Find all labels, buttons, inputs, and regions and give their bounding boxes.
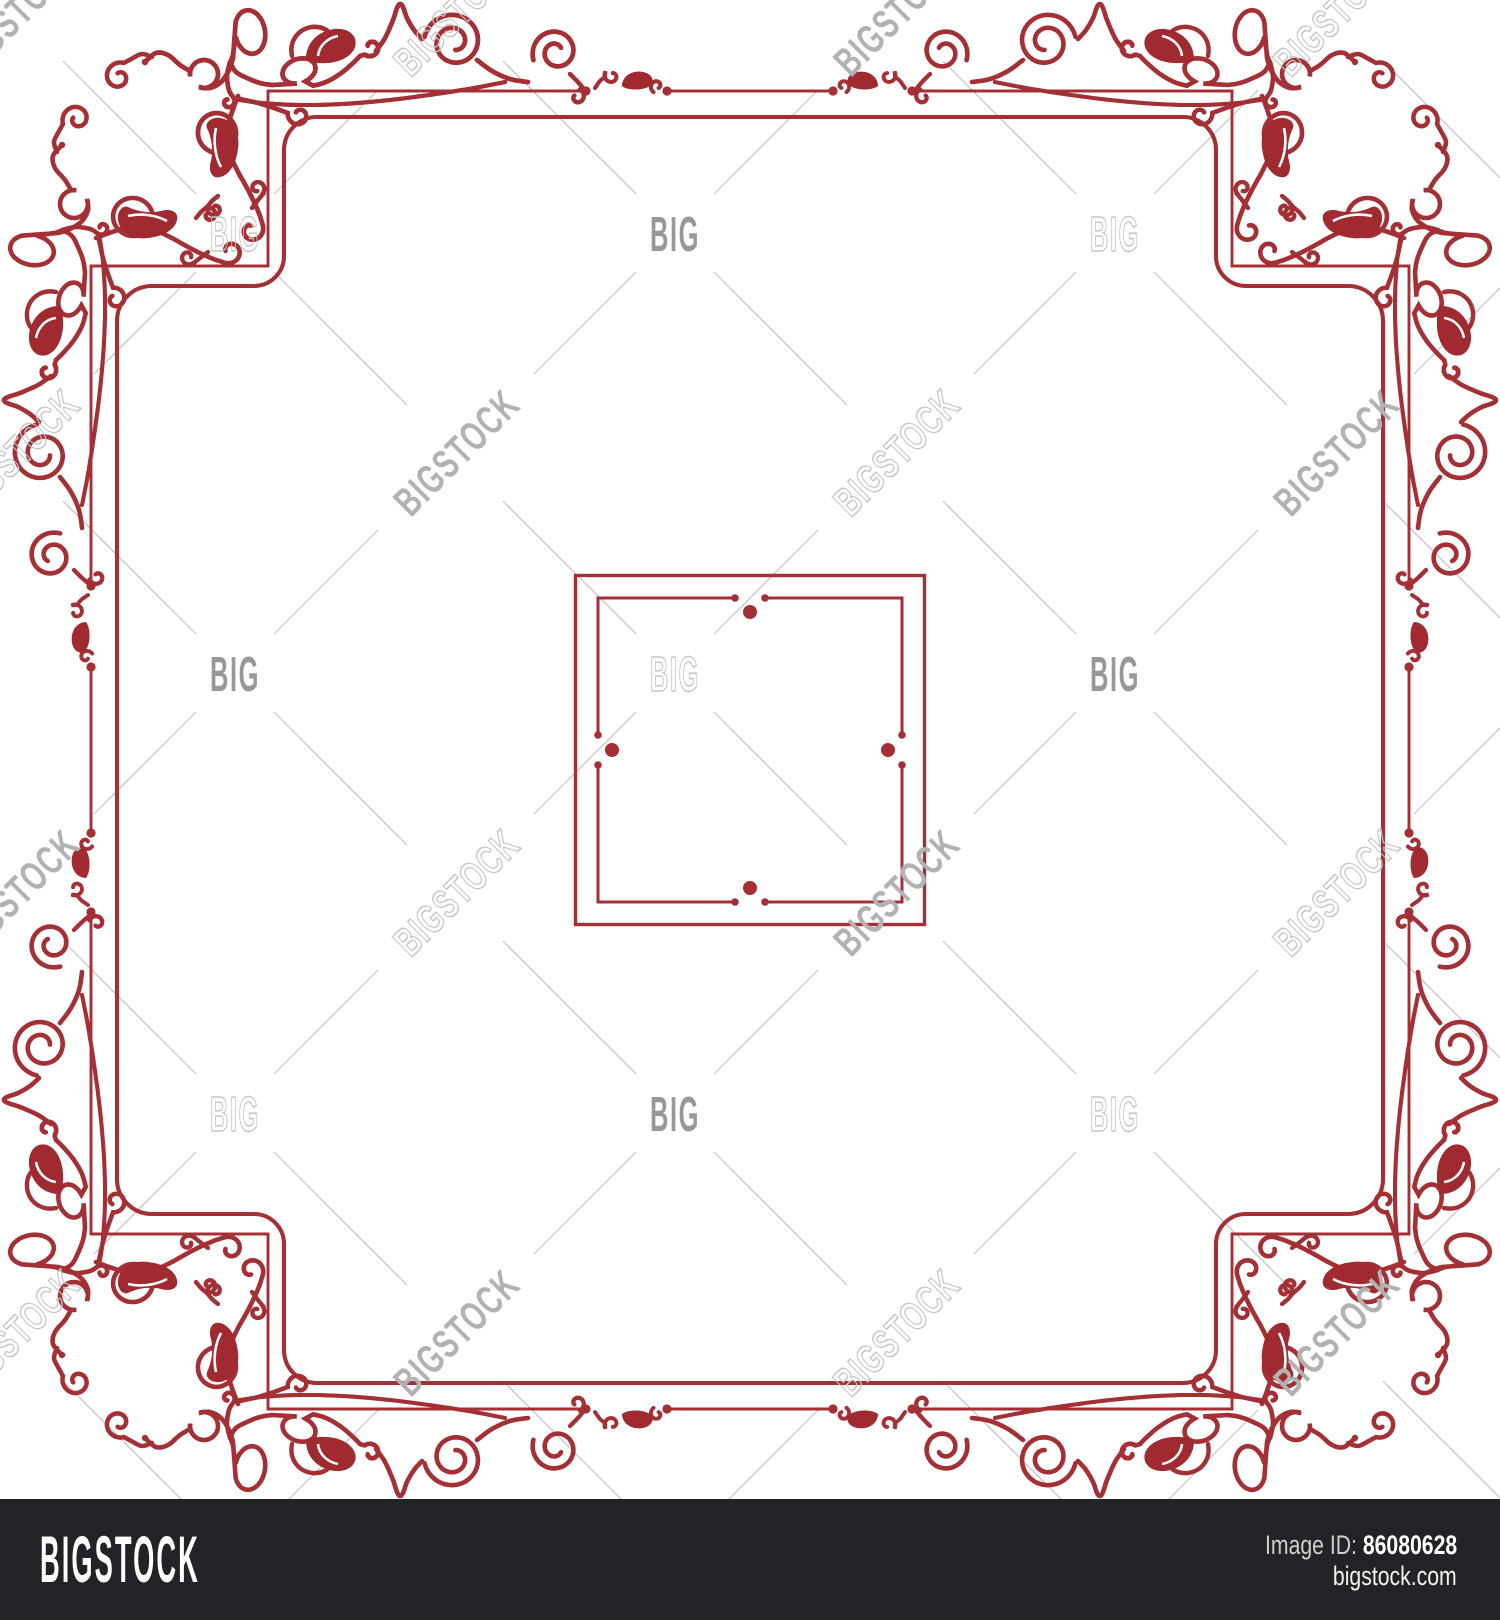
svg-text:BIG: BIG xyxy=(210,208,260,262)
svg-text:BIGSTOCK: BIGSTOCK xyxy=(1265,381,1409,525)
svg-text:BIG: BIG xyxy=(650,1088,700,1142)
svg-text:BIGSTOCK: BIGSTOCK xyxy=(385,821,529,965)
svg-text:BIG: BIG xyxy=(1090,648,1140,702)
svg-text:BIG: BIG xyxy=(210,648,260,702)
svg-text:BIGSTOCK: BIGSTOCK xyxy=(825,381,969,525)
svg-text:BIGSTOCK: BIGSTOCK xyxy=(0,1261,89,1405)
svg-text:BIG: BIG xyxy=(650,208,700,262)
svg-text:BIGSTOCK: BIGSTOCK xyxy=(1265,821,1409,965)
svg-text:BIG: BIG xyxy=(650,648,700,702)
svg-text:BIGSTOCK: BIGSTOCK xyxy=(1265,0,1409,85)
svg-text:BIG: BIG xyxy=(1090,208,1140,262)
svg-text:BIG: BIG xyxy=(1090,1088,1140,1142)
svg-text:BIGSTOCK: BIGSTOCK xyxy=(0,0,89,85)
svg-text:BIG: BIG xyxy=(210,1088,260,1142)
svg-text:BIGSTOCK: BIGSTOCK xyxy=(385,381,529,525)
svg-text:BIGSTOCK: BIGSTOCK xyxy=(825,821,969,965)
